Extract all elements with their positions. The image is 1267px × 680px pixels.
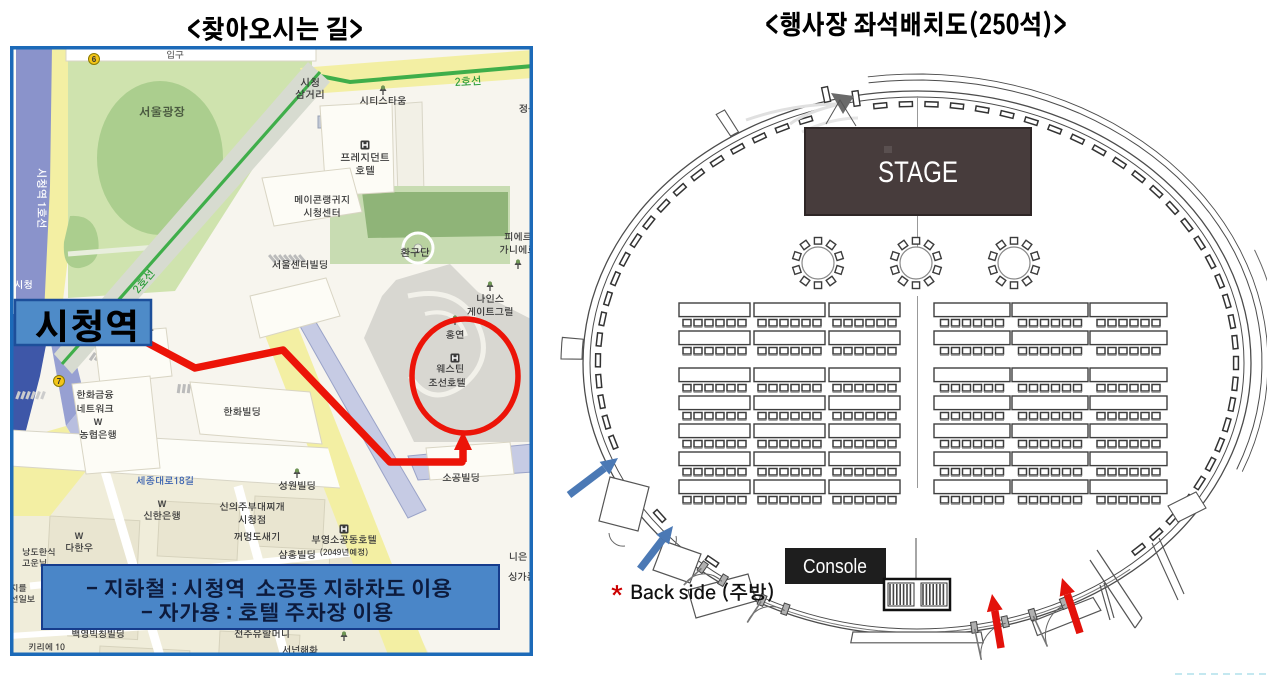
svg-text:Console: Console (803, 556, 867, 578)
svg-text:7: 7 (57, 377, 62, 386)
svg-text:W: W (75, 531, 84, 541)
svg-text:W: W (158, 499, 167, 509)
svg-text:W: W (94, 417, 103, 427)
svg-text:6: 6 (92, 55, 97, 64)
svg-text:STAGE: STAGE (878, 156, 958, 189)
